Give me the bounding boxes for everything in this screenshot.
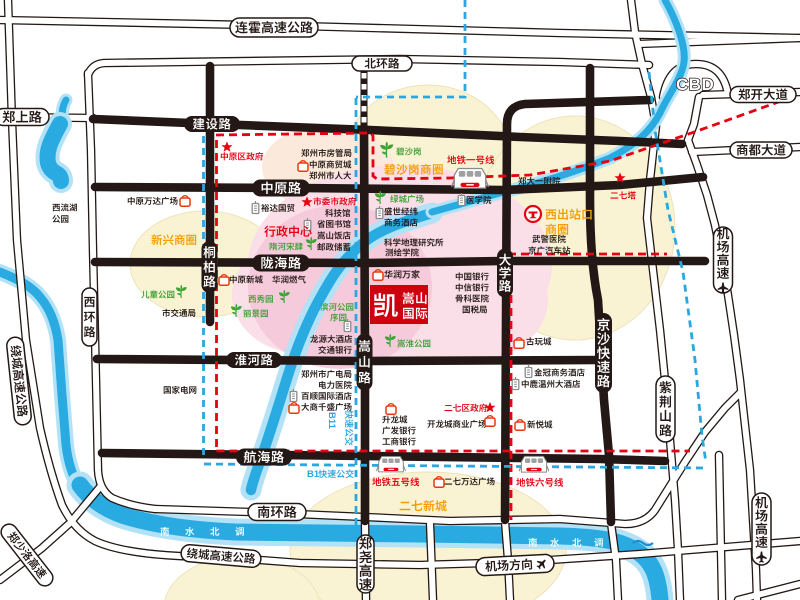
svg-text:B1: B1 (307, 469, 320, 480)
svg-text:CBD: CBD (676, 75, 714, 94)
svg-text:B11: B11 (326, 412, 337, 430)
